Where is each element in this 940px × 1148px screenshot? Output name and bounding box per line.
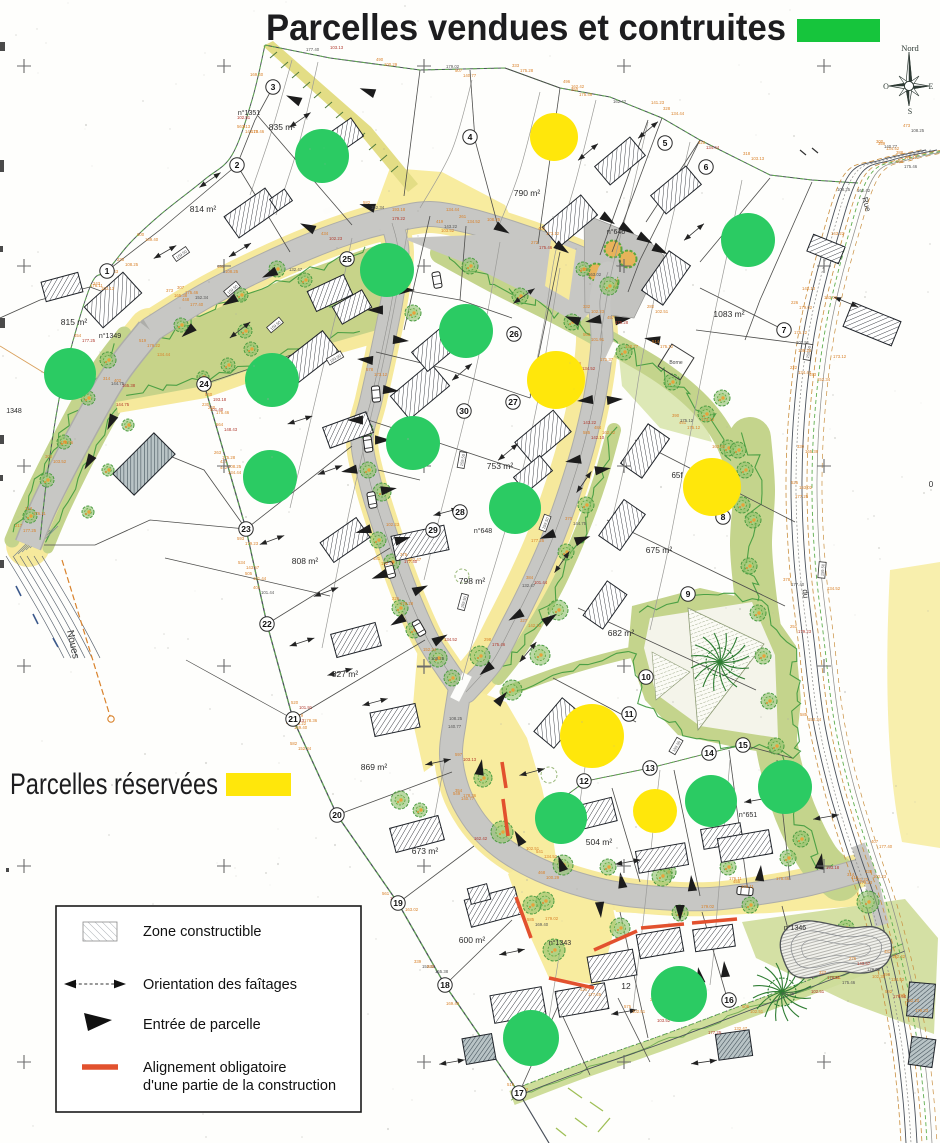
svg-text:175.46: 175.46 xyxy=(842,980,856,985)
svg-text:534: 534 xyxy=(238,560,246,565)
svg-text:175.12: 175.12 xyxy=(904,155,918,160)
svg-text:401: 401 xyxy=(538,226,546,231)
svg-text:1083 m²: 1083 m² xyxy=(713,309,744,319)
svg-text:314: 314 xyxy=(103,376,111,381)
svg-text:176.11: 176.11 xyxy=(741,884,754,889)
svg-text:177.40: 177.40 xyxy=(791,582,805,587)
svg-text:272: 272 xyxy=(531,240,539,245)
svg-text:173.12: 173.12 xyxy=(833,354,847,359)
svg-text:143.22: 143.22 xyxy=(831,231,845,236)
svg-text:175.12: 175.12 xyxy=(794,330,808,335)
svg-text:108.25: 108.25 xyxy=(431,656,445,661)
svg-text:798 m²: 798 m² xyxy=(459,576,486,586)
svg-text:134.44: 134.44 xyxy=(446,207,460,212)
svg-text:22: 22 xyxy=(262,619,272,629)
svg-text:173.12: 173.12 xyxy=(546,231,560,236)
svg-text:108.25: 108.25 xyxy=(487,217,501,222)
svg-text:134.52: 134.52 xyxy=(582,366,596,371)
svg-text:585: 585 xyxy=(800,712,808,717)
svg-text:325: 325 xyxy=(698,140,706,145)
svg-text:134.44: 134.44 xyxy=(157,352,171,357)
svg-text:132.47: 132.47 xyxy=(522,583,536,588)
svg-text:179.02: 179.02 xyxy=(545,916,559,921)
svg-text:144.75: 144.75 xyxy=(573,521,587,526)
svg-text:496: 496 xyxy=(563,79,571,84)
svg-text:165.38: 165.38 xyxy=(805,449,819,454)
svg-text:16: 16 xyxy=(724,995,734,1005)
svg-text:n°1346: n°1346 xyxy=(784,924,806,932)
svg-text:176.11: 176.11 xyxy=(33,511,46,516)
svg-text:753 m²: 753 m² xyxy=(487,461,514,471)
svg-text:15: 15 xyxy=(738,740,748,750)
svg-text:169.40: 169.40 xyxy=(145,237,159,242)
svg-text:175.12: 175.12 xyxy=(680,418,694,423)
svg-text:505: 505 xyxy=(245,571,253,576)
svg-text:103.13: 103.13 xyxy=(463,757,477,762)
svg-text:179.02: 179.02 xyxy=(701,904,715,909)
svg-text:179.23: 179.23 xyxy=(915,1008,929,1013)
svg-text:n°648: n°648 xyxy=(474,527,492,535)
svg-text:140.77: 140.77 xyxy=(884,144,898,149)
svg-text:162.42: 162.42 xyxy=(892,954,906,959)
svg-text:18: 18 xyxy=(440,980,450,990)
svg-text:134.44: 134.44 xyxy=(671,111,685,116)
svg-text:814 m²: 814 m² xyxy=(190,204,217,214)
svg-text:582: 582 xyxy=(427,964,435,969)
svg-text:675 m²: 675 m² xyxy=(646,545,673,555)
svg-text:103.52: 103.52 xyxy=(53,459,67,464)
svg-text:177.25: 177.25 xyxy=(795,494,809,499)
svg-text:835 m²: 835 m² xyxy=(269,122,296,132)
svg-text:333: 333 xyxy=(512,63,520,68)
svg-text:280: 280 xyxy=(898,993,906,998)
svg-text:179.23: 179.23 xyxy=(859,880,873,885)
svg-text:582: 582 xyxy=(290,741,298,746)
svg-text:350: 350 xyxy=(571,87,579,92)
svg-text:101.91: 101.91 xyxy=(299,705,313,710)
svg-text:10: 10 xyxy=(641,672,651,682)
svg-text:23: 23 xyxy=(241,524,251,534)
svg-text:177.25: 177.25 xyxy=(708,1030,722,1035)
svg-text:17: 17 xyxy=(514,1088,524,1098)
svg-text:162.42: 162.42 xyxy=(857,188,871,193)
svg-text:177.40: 177.40 xyxy=(879,844,893,849)
svg-text:152.34: 152.34 xyxy=(371,205,385,210)
svg-text:869 m²: 869 m² xyxy=(361,762,388,772)
svg-text:516: 516 xyxy=(507,1082,515,1087)
svg-text:134.52: 134.52 xyxy=(544,854,558,859)
svg-text:n°1351: n°1351 xyxy=(238,109,260,117)
svg-text:390: 390 xyxy=(672,413,680,418)
svg-text:575: 575 xyxy=(624,1004,632,1009)
svg-text:541: 541 xyxy=(536,849,544,854)
svg-text:808 m²: 808 m² xyxy=(292,556,319,566)
svg-text:108.25: 108.25 xyxy=(125,262,139,267)
svg-text:163.02: 163.02 xyxy=(824,295,838,300)
svg-text:3: 3 xyxy=(271,82,276,92)
svg-text:103.13: 103.13 xyxy=(751,156,765,161)
svg-text:29: 29 xyxy=(428,525,438,535)
svg-text:585: 585 xyxy=(527,917,535,922)
svg-text:142.10: 142.10 xyxy=(528,623,542,628)
svg-text:134.52: 134.52 xyxy=(444,637,458,642)
svg-text:222: 222 xyxy=(790,365,798,370)
svg-text:593: 593 xyxy=(237,536,245,541)
svg-text:21: 21 xyxy=(288,714,298,724)
svg-text:140.77: 140.77 xyxy=(448,724,462,729)
svg-text:514: 514 xyxy=(652,339,660,344)
svg-text:169.40: 169.40 xyxy=(250,72,264,77)
svg-text:141.23: 141.23 xyxy=(651,100,665,105)
svg-text:0: 0 xyxy=(929,480,934,489)
svg-text:5: 5 xyxy=(663,138,668,148)
svg-text:165.38: 165.38 xyxy=(174,293,188,298)
svg-text:143.57: 143.57 xyxy=(857,961,871,966)
svg-text:134.52: 134.52 xyxy=(827,586,841,591)
svg-text:330: 330 xyxy=(797,444,805,449)
svg-text:Orientation des faîtages: Orientation des faîtages xyxy=(143,977,297,993)
svg-text:152.34: 152.34 xyxy=(195,295,209,300)
svg-text:413: 413 xyxy=(243,124,251,129)
svg-text:20: 20 xyxy=(332,810,342,820)
svg-text:276: 276 xyxy=(849,956,857,961)
svg-text:103.13: 103.13 xyxy=(101,286,115,291)
svg-text:27: 27 xyxy=(508,397,518,407)
svg-text:179.23: 179.23 xyxy=(798,629,812,634)
svg-text:175.28: 175.28 xyxy=(400,601,414,606)
svg-text:313: 313 xyxy=(25,506,33,511)
svg-text:25: 25 xyxy=(342,254,352,264)
svg-text:143.22: 143.22 xyxy=(444,224,458,229)
svg-text:519: 519 xyxy=(139,338,147,343)
svg-text:520: 520 xyxy=(291,700,299,705)
svg-text:140.77: 140.77 xyxy=(463,73,477,78)
svg-text:457: 457 xyxy=(607,315,615,320)
svg-text:169.40: 169.40 xyxy=(446,1001,460,1006)
svg-text:102.51: 102.51 xyxy=(811,989,825,994)
svg-text:134.44: 134.44 xyxy=(228,470,242,475)
svg-text:102.23: 102.23 xyxy=(873,874,887,879)
svg-text:179.02: 179.02 xyxy=(799,305,813,310)
svg-text:140.77: 140.77 xyxy=(625,344,639,349)
svg-text:152.34: 152.34 xyxy=(808,717,822,722)
svg-text:563: 563 xyxy=(583,332,591,337)
svg-text:175.12: 175.12 xyxy=(660,344,674,349)
svg-text:178.36: 178.36 xyxy=(304,718,318,723)
svg-text:597: 597 xyxy=(455,752,463,757)
svg-text:102.51: 102.51 xyxy=(632,1009,646,1014)
svg-text:243: 243 xyxy=(93,281,101,286)
svg-text:327: 327 xyxy=(520,618,528,623)
svg-text:165.38: 165.38 xyxy=(435,969,449,974)
svg-text:163.02: 163.02 xyxy=(799,485,813,490)
svg-text:108.25: 108.25 xyxy=(911,128,925,133)
svg-text:178.36: 178.36 xyxy=(463,793,477,798)
svg-text:175.46: 175.46 xyxy=(492,642,506,647)
svg-text:14: 14 xyxy=(704,748,714,758)
svg-text:578: 578 xyxy=(366,367,374,372)
svg-text:410: 410 xyxy=(851,875,859,880)
svg-text:175.46: 175.46 xyxy=(776,876,790,881)
svg-text:332: 332 xyxy=(583,304,591,309)
svg-text:102.35: 102.35 xyxy=(781,991,795,996)
svg-text:175.46: 175.46 xyxy=(251,129,265,134)
svg-text:378: 378 xyxy=(783,577,791,582)
svg-text:26: 26 xyxy=(509,329,519,339)
svg-text:318: 318 xyxy=(743,151,751,156)
svg-text:102.51: 102.51 xyxy=(750,1009,764,1014)
svg-text:S: S xyxy=(908,107,912,116)
svg-text:142.10: 142.10 xyxy=(591,435,605,440)
svg-text:282: 282 xyxy=(647,304,655,309)
svg-text:173.12: 173.12 xyxy=(374,372,388,377)
svg-text:175.46: 175.46 xyxy=(216,410,230,415)
svg-text:354: 354 xyxy=(455,788,463,793)
svg-text:144.75: 144.75 xyxy=(116,402,130,407)
svg-text:30: 30 xyxy=(459,406,469,416)
svg-text:101.91: 101.91 xyxy=(591,337,605,342)
svg-text:211: 211 xyxy=(834,975,841,980)
svg-text:175.28: 175.28 xyxy=(520,68,534,73)
svg-text:815 m²: 815 m² xyxy=(61,317,88,327)
svg-text:7: 7 xyxy=(782,325,787,335)
svg-text:102.51: 102.51 xyxy=(655,309,669,314)
svg-text:233: 233 xyxy=(117,257,125,262)
svg-text:484: 484 xyxy=(594,425,602,430)
svg-text:339: 339 xyxy=(414,959,422,964)
svg-text:102.51: 102.51 xyxy=(796,340,810,345)
svg-text:Nord: Nord xyxy=(901,43,919,53)
svg-text:327: 327 xyxy=(819,970,827,975)
svg-text:Zone constructible: Zone constructible xyxy=(143,924,261,940)
svg-text:490: 490 xyxy=(376,57,384,62)
svg-text:401: 401 xyxy=(253,585,261,590)
svg-text:162.42: 162.42 xyxy=(474,836,488,841)
svg-text:163.02: 163.02 xyxy=(405,907,419,912)
svg-text:101.44: 101.44 xyxy=(261,590,275,595)
svg-text:673 m²: 673 m² xyxy=(412,846,439,856)
svg-text:102.23: 102.23 xyxy=(329,236,343,241)
svg-text:144.75: 144.75 xyxy=(111,381,125,386)
svg-text:134.44: 134.44 xyxy=(706,145,720,150)
svg-text:251: 251 xyxy=(790,624,798,629)
svg-text:4: 4 xyxy=(468,132,473,142)
svg-text:507: 507 xyxy=(455,68,463,73)
svg-text:28: 28 xyxy=(455,507,465,517)
svg-text:179.22: 179.22 xyxy=(147,343,161,348)
svg-text:598: 598 xyxy=(896,159,904,164)
svg-text:300: 300 xyxy=(876,139,884,144)
svg-text:163.02: 163.02 xyxy=(712,444,726,449)
svg-text:24: 24 xyxy=(199,379,209,389)
svg-text:101.44: 101.44 xyxy=(534,580,548,585)
svg-text:455: 455 xyxy=(733,879,741,884)
svg-text:373: 373 xyxy=(166,288,174,293)
svg-text:240: 240 xyxy=(208,405,216,410)
svg-text:177.25: 177.25 xyxy=(23,528,37,533)
svg-text:12: 12 xyxy=(621,981,631,991)
svg-text:d'une partie de la constructio: d'une partie de la construction xyxy=(143,1078,336,1094)
svg-text:178.36: 178.36 xyxy=(60,440,74,445)
svg-text:487: 487 xyxy=(884,949,892,954)
svg-text:226: 226 xyxy=(791,300,799,305)
svg-text:434: 434 xyxy=(321,231,329,236)
svg-text:468: 468 xyxy=(538,870,546,875)
svg-text:307: 307 xyxy=(177,285,185,290)
svg-text:162.42: 162.42 xyxy=(613,99,627,104)
svg-text:481: 481 xyxy=(373,556,381,561)
svg-text:102.23: 102.23 xyxy=(591,309,605,314)
svg-text:193.18: 193.18 xyxy=(213,397,227,402)
svg-text:193.18: 193.18 xyxy=(392,207,406,212)
svg-text:9: 9 xyxy=(686,589,691,599)
svg-text:108.25: 108.25 xyxy=(837,187,851,192)
svg-text:132.47: 132.47 xyxy=(734,1026,748,1031)
svg-text:600: 600 xyxy=(137,232,145,237)
svg-text:143.57: 143.57 xyxy=(246,565,260,570)
svg-text:132.47: 132.47 xyxy=(289,267,303,272)
svg-text:169.40: 169.40 xyxy=(535,922,549,927)
svg-text:12: 12 xyxy=(579,776,589,786)
svg-text:Entrée de parcelle: Entrée de parcelle xyxy=(143,1017,261,1033)
svg-text:142.10: 142.10 xyxy=(802,286,816,291)
svg-text:179.02: 179.02 xyxy=(867,967,881,972)
svg-text:177.25: 177.25 xyxy=(588,992,602,997)
svg-text:217: 217 xyxy=(15,523,23,528)
svg-text:426: 426 xyxy=(580,987,588,992)
svg-text:179.22: 179.22 xyxy=(392,216,406,221)
svg-text:585: 585 xyxy=(583,430,591,435)
svg-text:Parcelles réservées: Parcelles réservées xyxy=(10,768,218,801)
svg-text:454: 454 xyxy=(74,333,82,338)
svg-text:407: 407 xyxy=(871,839,879,844)
svg-text:370: 370 xyxy=(565,516,573,521)
svg-text:65f: 65f xyxy=(671,471,683,480)
svg-text:177.25: 177.25 xyxy=(531,538,545,543)
svg-text:827 m²: 827 m² xyxy=(332,669,359,679)
svg-text:263: 263 xyxy=(214,450,222,455)
svg-text:101.44: 101.44 xyxy=(253,576,267,581)
svg-text:175.12: 175.12 xyxy=(687,425,701,430)
svg-text:108.25: 108.25 xyxy=(449,716,463,721)
svg-text:108.25: 108.25 xyxy=(225,269,239,274)
svg-text:298: 298 xyxy=(484,637,492,642)
svg-text:302: 302 xyxy=(45,454,53,459)
svg-text:175.28: 175.28 xyxy=(615,320,629,325)
svg-text:19: 19 xyxy=(393,898,403,908)
svg-text:338: 338 xyxy=(865,869,873,874)
svg-text:175.37: 175.37 xyxy=(600,357,614,362)
svg-text:134.52: 134.52 xyxy=(891,977,905,982)
svg-text:490: 490 xyxy=(883,972,891,977)
svg-text:179.23: 179.23 xyxy=(245,541,259,546)
svg-text:177.40: 177.40 xyxy=(190,302,204,307)
svg-text:13: 13 xyxy=(645,763,655,773)
svg-text:504 m²: 504 m² xyxy=(586,837,613,847)
svg-text:100.29: 100.29 xyxy=(546,875,560,880)
svg-text:525: 525 xyxy=(791,480,799,485)
svg-text:506: 506 xyxy=(742,1004,750,1009)
svg-text:1: 1 xyxy=(105,266,110,276)
svg-text:134.52: 134.52 xyxy=(467,219,481,224)
svg-text:143.22: 143.22 xyxy=(583,420,597,425)
svg-text:102.23: 102.23 xyxy=(386,522,400,527)
svg-text:152.34: 152.34 xyxy=(298,746,312,751)
svg-text:175.46: 175.46 xyxy=(904,164,918,169)
svg-text:n°646: n°646 xyxy=(607,228,625,236)
svg-text:173.12: 173.12 xyxy=(701,417,715,422)
svg-text:561: 561 xyxy=(382,891,390,896)
svg-text:n°651: n°651 xyxy=(739,811,757,819)
svg-text:261: 261 xyxy=(459,214,467,219)
svg-text:592: 592 xyxy=(885,989,893,994)
svg-text:375: 375 xyxy=(400,552,408,557)
svg-text:237: 237 xyxy=(580,267,588,272)
svg-text:100.29: 100.29 xyxy=(384,62,398,67)
svg-text:540: 540 xyxy=(205,392,213,397)
svg-text:226: 226 xyxy=(392,596,400,601)
svg-text:134.44: 134.44 xyxy=(798,370,812,375)
svg-text:132.47: 132.47 xyxy=(408,557,422,562)
svg-text:600 m²: 600 m² xyxy=(459,935,486,945)
svg-text:790 m²: 790 m² xyxy=(514,188,541,198)
svg-text:n°1349: n°1349 xyxy=(99,332,121,340)
svg-text:6: 6 xyxy=(704,162,709,172)
svg-text:Parcelles vendues et contruite: Parcelles vendues et contruites xyxy=(266,7,786,48)
svg-text:175.46: 175.46 xyxy=(539,245,553,250)
svg-text:419: 419 xyxy=(436,219,444,224)
svg-text:Borne: Borne xyxy=(669,360,683,366)
svg-text:1348: 1348 xyxy=(6,408,22,415)
svg-text:152.34: 152.34 xyxy=(423,647,437,652)
svg-text:328: 328 xyxy=(663,106,671,111)
svg-text:108.25: 108.25 xyxy=(798,348,812,353)
svg-text:384: 384 xyxy=(526,575,534,580)
svg-text:473: 473 xyxy=(903,123,911,128)
svg-text:Alignement obligatoire: Alignement obligatoire xyxy=(143,1060,286,1076)
svg-text:148.43: 148.43 xyxy=(224,427,238,432)
svg-text:175.46: 175.46 xyxy=(579,92,593,97)
svg-text:11: 11 xyxy=(624,709,633,719)
svg-text:132.47: 132.47 xyxy=(381,561,395,566)
svg-text:du: du xyxy=(801,589,811,599)
svg-text:142.10: 142.10 xyxy=(906,998,920,1003)
svg-text:177.25: 177.25 xyxy=(82,338,96,343)
svg-text:152.34: 152.34 xyxy=(817,377,831,382)
svg-text:n°1343: n°1343 xyxy=(549,939,571,947)
svg-text:163.02: 163.02 xyxy=(588,272,602,277)
svg-text:E: E xyxy=(929,82,934,91)
svg-text:564: 564 xyxy=(216,422,224,427)
svg-text:2: 2 xyxy=(235,160,240,170)
svg-text:O: O xyxy=(883,82,889,91)
svg-text:682 m²: 682 m² xyxy=(608,628,635,638)
svg-text:582: 582 xyxy=(363,200,371,205)
